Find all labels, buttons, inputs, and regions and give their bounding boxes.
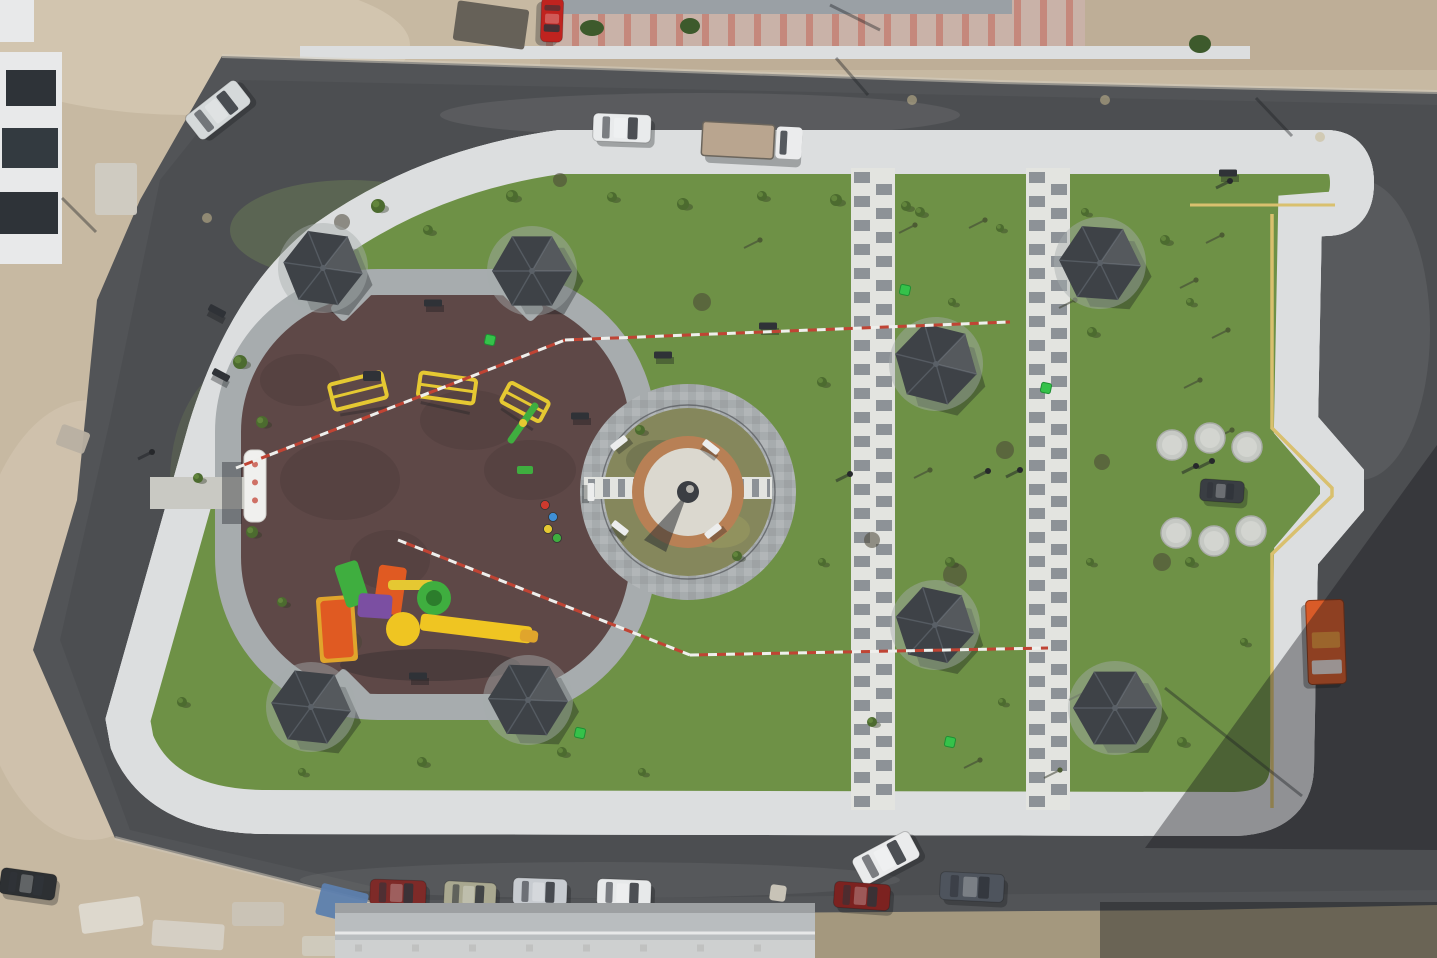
- building-roof-bottom: [335, 940, 815, 958]
- bench-seat: [424, 300, 442, 307]
- play-structure-part: [386, 612, 420, 646]
- rear-window: [521, 881, 529, 902]
- dark-red-car-bottom-2: [833, 881, 895, 916]
- paver-disc-inner: [1237, 437, 1257, 457]
- shrub-highlight: [299, 769, 303, 773]
- shrub-highlight: [178, 698, 183, 703]
- shrub-highlight: [639, 769, 643, 773]
- spring-rider: [544, 525, 553, 534]
- sapling-tree: [1193, 277, 1198, 282]
- aerial-photo-stage: [0, 0, 1437, 958]
- windshield: [629, 883, 639, 904]
- white-bench: [582, 483, 595, 503]
- shrub-highlight: [758, 192, 763, 197]
- banner-text-mark: [252, 497, 258, 503]
- windshield: [475, 885, 485, 905]
- sapling-tree: [1229, 427, 1234, 432]
- shrub-highlight: [902, 202, 907, 207]
- road-mark-dot: [1315, 132, 1325, 142]
- rear-window: [379, 882, 387, 902]
- building-roof-edge-top: [552, 0, 1012, 14]
- flatbed-truck: [701, 121, 803, 167]
- rear-window: [1207, 482, 1214, 498]
- shrub-highlight: [868, 718, 873, 723]
- shrub-highlight: [999, 699, 1003, 703]
- bush: [680, 18, 700, 34]
- building-window: [2, 128, 58, 168]
- rubber-blotch: [260, 354, 340, 406]
- pallet-on-road: [769, 884, 787, 902]
- green-litter-bin: [944, 736, 956, 748]
- bench-seat: [759, 323, 777, 330]
- green-litter-bin: [574, 727, 586, 739]
- paver-disc-inner: [1241, 521, 1261, 541]
- green-litter-bin: [899, 284, 911, 296]
- shrub-highlight: [831, 195, 837, 201]
- sapling-tree: [1219, 232, 1224, 237]
- sapling-tree: [927, 467, 932, 472]
- sapling-tree: [757, 237, 762, 242]
- shrub-highlight: [1178, 738, 1183, 743]
- person: [847, 471, 853, 477]
- roof-highlight: [963, 877, 978, 898]
- play-structure-part: [519, 629, 538, 643]
- park-aerial-scene: [0, 0, 1437, 958]
- rubble: [232, 902, 284, 926]
- windshield: [403, 883, 413, 903]
- building-window: [0, 192, 58, 234]
- person: [1227, 178, 1233, 184]
- shrub-highlight: [418, 758, 423, 763]
- road-mark-dot: [202, 213, 212, 223]
- shrub-highlight: [949, 299, 953, 303]
- windshield: [627, 117, 638, 139]
- green-play-bench: [517, 466, 533, 474]
- sapling-tree: [912, 222, 917, 227]
- rubble: [151, 920, 225, 951]
- dirt-spot: [864, 532, 880, 548]
- roof-highlight: [462, 886, 474, 905]
- shrub-highlight: [678, 199, 684, 205]
- green-litter-bin: [1040, 382, 1052, 394]
- shrub-highlight: [194, 474, 199, 479]
- shrub-highlight: [997, 225, 1001, 229]
- shrub-highlight: [372, 200, 379, 207]
- shrub-highlight: [424, 226, 429, 231]
- banner-shadow: [222, 462, 242, 524]
- roof-highlight: [390, 884, 403, 902]
- green-litter-bin: [484, 334, 496, 346]
- road-mark-dot: [1100, 95, 1110, 105]
- bench-seat: [409, 673, 427, 680]
- gazebo-finial: [1112, 705, 1118, 711]
- play-structure-part: [357, 593, 393, 619]
- roof-highlight: [854, 886, 868, 905]
- windshield: [544, 24, 560, 32]
- shrub-highlight: [818, 378, 823, 383]
- park-bench: [424, 300, 444, 313]
- spring-rider: [541, 501, 550, 510]
- shrub-highlight: [507, 191, 513, 197]
- shrub-highlight: [636, 426, 641, 431]
- road-mark-dot: [907, 95, 917, 105]
- rear-window: [602, 116, 610, 138]
- truck-cab: [775, 126, 803, 159]
- play-structure-part: [426, 590, 442, 606]
- park-bench: [654, 352, 674, 365]
- utility-cart-on-path: [1199, 478, 1249, 508]
- shrub-highlight: [1087, 559, 1091, 563]
- white-car-top-road: [592, 113, 655, 148]
- paver-disc-inner: [1162, 435, 1182, 455]
- roof-highlight: [1215, 484, 1226, 499]
- rear-window: [452, 884, 460, 904]
- dirt-spot: [1094, 454, 1110, 470]
- sapling-tree: [1057, 767, 1062, 772]
- shrub-highlight: [916, 208, 921, 213]
- rear-window: [544, 5, 560, 11]
- windshield: [978, 876, 990, 899]
- person: [1209, 458, 1215, 464]
- shrub-highlight: [278, 598, 283, 603]
- bench-seat: [1219, 170, 1237, 177]
- spring-rider: [553, 534, 562, 543]
- spring-rider: [549, 513, 558, 522]
- bush: [580, 20, 604, 36]
- rear-window: [842, 885, 851, 905]
- bench-seat: [571, 413, 589, 420]
- white-curb-top: [300, 46, 1250, 59]
- bush: [1189, 35, 1211, 53]
- windshield: [867, 886, 878, 907]
- bench-seat: [654, 352, 672, 359]
- bottom-sidewalk-and-buildings: [335, 903, 815, 958]
- bench-seat: [588, 483, 595, 501]
- shrub-highlight: [819, 559, 823, 563]
- shrub-highlight: [1187, 299, 1191, 303]
- shrub-highlight: [733, 552, 738, 557]
- monument-top: [686, 485, 694, 493]
- sapling-tree: [1225, 327, 1230, 332]
- sapling-tree: [977, 757, 982, 762]
- shrub-highlight: [558, 748, 563, 753]
- dirt-spot: [553, 173, 567, 187]
- gray-suv-bottom: [939, 871, 1009, 908]
- dirt-spot: [1153, 553, 1171, 571]
- gazebo-finial: [529, 268, 535, 274]
- rubber-blotch: [280, 440, 400, 520]
- shrub-highlight: [234, 356, 241, 363]
- roof-highlight: [614, 118, 627, 138]
- shrub-highlight: [1161, 236, 1166, 241]
- building-corner-roof: [0, 0, 34, 42]
- park-bench: [409, 673, 429, 686]
- windshield: [1226, 483, 1235, 499]
- red-car-building-lot: [535, 0, 564, 46]
- roof-highlight: [532, 882, 545, 901]
- roof-highlight: [19, 874, 34, 894]
- person: [149, 449, 155, 455]
- corner-shadow: [1100, 902, 1437, 958]
- play-structure-part: [320, 599, 354, 659]
- rear-window: [605, 882, 613, 903]
- dirt-spot: [693, 293, 711, 311]
- paver-disc-inner: [1166, 523, 1186, 543]
- paver-disc-inner: [1200, 428, 1220, 448]
- person: [985, 468, 991, 474]
- shrub-highlight: [946, 558, 951, 563]
- shrub-highlight: [1186, 558, 1191, 563]
- block-stack: [95, 163, 137, 215]
- shrub-highlight: [608, 193, 613, 198]
- truck-bed: [701, 121, 775, 159]
- windshield: [545, 882, 555, 903]
- sidewalk-curb-shade: [335, 903, 815, 913]
- sapling-tree: [1197, 377, 1202, 382]
- banner-text-mark: [252, 479, 258, 485]
- truck-windshield: [779, 130, 787, 154]
- roof-highlight: [616, 883, 629, 902]
- park-bench: [571, 413, 591, 426]
- rubber-mat: [363, 371, 381, 381]
- shrub-highlight: [1241, 639, 1245, 643]
- dirt-spot: [996, 441, 1014, 459]
- person: [1017, 467, 1023, 473]
- shrub-highlight: [1082, 209, 1086, 213]
- rear-window: [950, 875, 959, 897]
- building-window: [6, 70, 56, 106]
- shrub-highlight: [247, 527, 253, 533]
- paver-disc-inner: [1204, 531, 1224, 551]
- sapling-tree: [982, 217, 987, 222]
- shrub-highlight: [257, 417, 263, 423]
- roof-highlight: [545, 14, 559, 24]
- monument-plaza: [580, 384, 796, 600]
- shrub-highlight: [1088, 328, 1093, 333]
